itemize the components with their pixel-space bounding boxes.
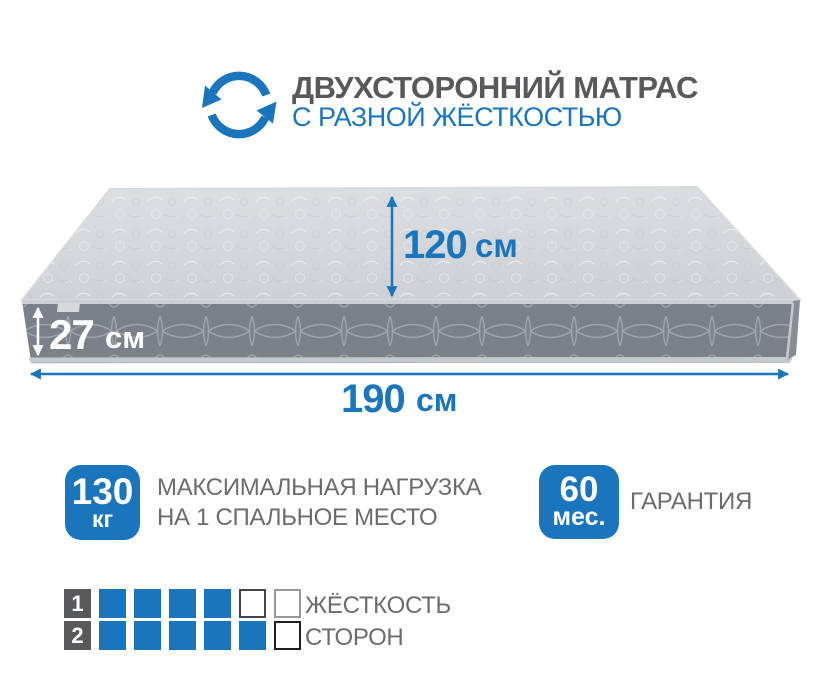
width-unit: см xyxy=(475,227,518,264)
firmness-row-1: 1 xyxy=(64,589,301,618)
scale-cell-filled xyxy=(204,589,231,618)
max-load-label: МАКСИМАЛЬНАЯ НАГРУЗКА НА 1 СПАЛЬНОЕ МЕСТ… xyxy=(157,473,481,533)
length-unit: см xyxy=(416,382,457,418)
max-load-value: 130 xyxy=(72,475,134,509)
firmness-cells-1 xyxy=(99,589,301,618)
firmness-label-line1: ЖЁСТКОСТЬ xyxy=(305,592,451,620)
length-dimension: 190 см xyxy=(31,374,788,421)
height-value: 27 xyxy=(49,311,94,358)
warranty-value: 60 xyxy=(560,475,599,505)
scale-cell-filled xyxy=(169,589,196,618)
warranty-unit: мес. xyxy=(553,505,606,529)
scale-cell-filled xyxy=(204,621,231,650)
max-load-label-line2: НА 1 СПАЛЬНОЕ МЕСТО xyxy=(157,503,481,533)
scale-cell-empty-darkest xyxy=(274,621,301,650)
scale-cell-filled xyxy=(99,589,126,618)
scale-cell-filled xyxy=(99,621,126,650)
scale-cell-filled xyxy=(134,621,161,650)
max-load-badge: 130 кг xyxy=(65,465,140,540)
warranty-badge: 60 мес. xyxy=(539,465,619,539)
length-value: 190 xyxy=(341,377,405,421)
firmness-scale: 1 2 xyxy=(64,589,301,653)
page-subtitle: С РАЗНОЙ ЖЁСТКОСТЬЮ xyxy=(292,102,622,133)
page-title: ДВУХСТОРОННИЙ МАТРАС xyxy=(292,70,698,106)
side-number-2: 2 xyxy=(64,621,91,650)
scale-cell-filled xyxy=(134,589,161,618)
rotate-two-sided-icon xyxy=(197,61,281,145)
width-value: 120 xyxy=(403,223,467,267)
max-load-unit: кг xyxy=(92,509,113,530)
scale-cell-filled xyxy=(239,621,266,650)
height-unit: см xyxy=(105,320,145,355)
scale-cell-empty-light xyxy=(274,589,301,618)
mattress-illustration: 120 см 27 см 190 см xyxy=(0,145,816,430)
scale-cell-empty-dark xyxy=(239,589,266,618)
mattress-infographic: ДВУХСТОРОННИЙ МАТРАС С РАЗНОЙ ЖЁСТКОСТЬЮ xyxy=(0,0,816,700)
firmness-row-2: 2 xyxy=(64,621,301,650)
max-load-label-line1: МАКСИМАЛЬНАЯ НАГРУЗКА xyxy=(157,473,481,503)
firmness-cells-2 xyxy=(99,621,301,650)
scale-cell-filled xyxy=(169,621,196,650)
side-number-1: 1 xyxy=(64,589,91,618)
warranty-label: ГАРАНТИЯ xyxy=(630,487,752,517)
firmness-label-line2: СТОРОН xyxy=(305,624,403,652)
